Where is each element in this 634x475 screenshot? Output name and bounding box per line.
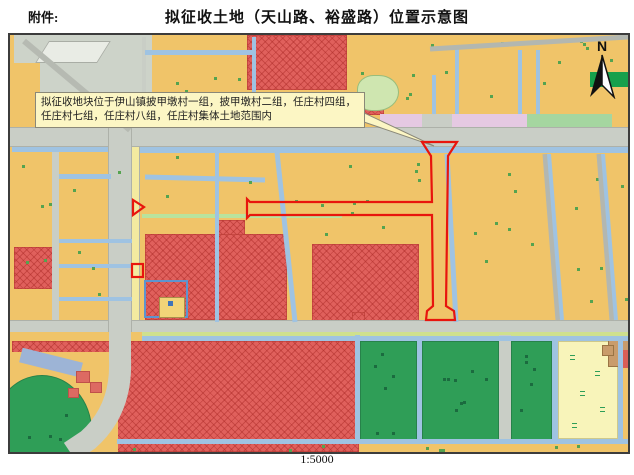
road-curve-south xyxy=(70,332,120,452)
map-canvas: 拟征收地块位于伊山镇披甲墩村一组，披甲墩村二组，任庄村四组，任庄村七组，任庄村八… xyxy=(8,33,630,454)
north-label: N xyxy=(587,39,617,53)
page: 附件: 拟征收土地（天山路、裕盛路）位置示意图 xyxy=(0,0,634,475)
callout-box: 拟征收地块位于伊山镇披甲墩村一组，披甲墩村二组，任庄村四组，任庄村七组，任庄村八… xyxy=(35,92,365,128)
north-arrow: N xyxy=(587,39,617,105)
callout-leader xyxy=(358,110,434,146)
scale-label: 1:5000 xyxy=(0,452,634,467)
acquisition-marker-square xyxy=(132,264,143,277)
callout-text: 拟征收地块位于伊山镇披甲墩村一组，披甲墩村二组，任庄村四组，任庄村七组，任庄村八… xyxy=(41,97,356,122)
acquisition-marker-triangle xyxy=(133,200,144,215)
canal-diagonal xyxy=(277,152,295,322)
north-arrow-icon xyxy=(587,53,617,99)
page-title: 拟征收土地（天山路、裕盛路）位置示意图 xyxy=(0,6,634,27)
